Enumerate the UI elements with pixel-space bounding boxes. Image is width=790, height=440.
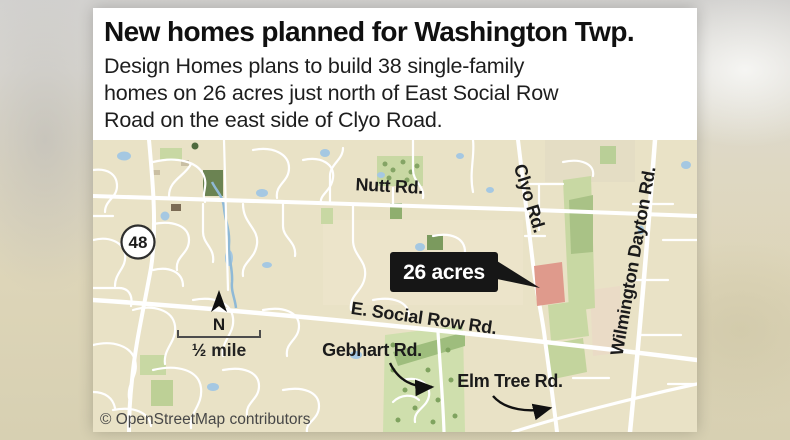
scale-bar-label: ½ mile	[192, 340, 247, 360]
page-title: New homes planned for Washington Twp.	[104, 17, 687, 47]
page-subtitle-line: Design Homes plans to build 38 single-fa…	[104, 53, 687, 80]
map-canvas: Nutt Rd. Clyo Rd. Wilmington Dayton Rd. …	[93, 140, 697, 432]
page-subtitle-line: Road on the east side of Clyo Road.	[104, 107, 687, 134]
compass-label: N	[213, 315, 225, 334]
road-label-elm-tree: Elm Tree Rd.	[457, 371, 562, 391]
infographic-header: New homes planned for Washington Twp. De…	[93, 8, 697, 140]
route-48-shield-label: 48	[129, 233, 148, 252]
map-attribution: © OpenStreetMap contributors	[100, 411, 311, 428]
road-label-gebhart: Gebhart Rd.	[322, 340, 422, 360]
callout-label: 26 acres	[403, 261, 485, 284]
parcel-26-acres	[534, 262, 565, 306]
map: Nutt Rd. Clyo Rd. Wilmington Dayton Rd. …	[93, 140, 697, 432]
page-subtitle-line: homes on 26 acres just north of East Soc…	[104, 80, 687, 107]
road-label-nutt: Nutt Rd.	[355, 174, 424, 198]
route-48-shield: 48	[122, 226, 155, 259]
land-field	[545, 140, 635, 182]
infographic-card: New homes planned for Washington Twp. De…	[93, 8, 697, 432]
